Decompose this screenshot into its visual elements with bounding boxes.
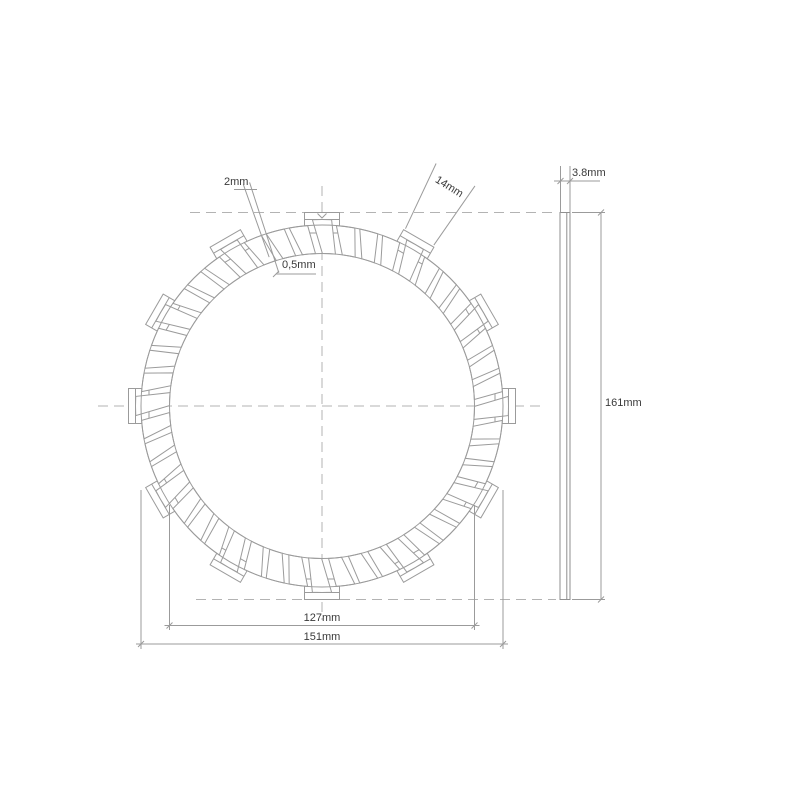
dimension-label-thickness: 3.8mm [572,167,606,179]
dimension-label-outer-diameter: 151mm [301,631,343,643]
clutch-plate-technical-drawing [0,0,800,800]
dimension-label-groove-width: 2mm [224,176,248,188]
dimension-label-inner-diameter: 127mm [301,612,343,624]
dimension-label-overall-diameter: 161mm [605,397,642,409]
side-view-plate [560,213,570,600]
dimension-label-step-depth: 0,5mm [282,259,316,271]
drawing-canvas: 2mm 14mm 0,5mm 127mm 151mm 3.8mm 161mm [0,0,800,800]
